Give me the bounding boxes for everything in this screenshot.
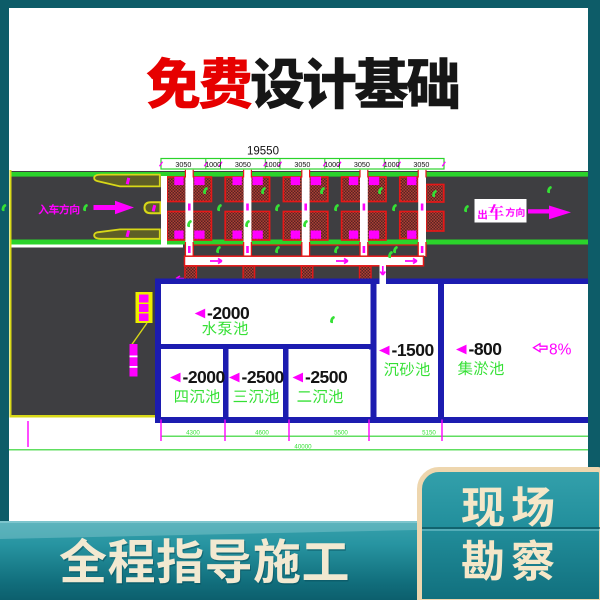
svg-text:5500: 5500: [334, 430, 348, 437]
svg-text:19550: 19550: [247, 146, 279, 158]
svg-text:3050: 3050: [175, 160, 191, 169]
svg-text:4300: 4300: [186, 430, 200, 437]
svg-text:-2500: -2500: [242, 367, 285, 387]
svg-text:1000: 1000: [265, 160, 281, 169]
svg-text:5150: 5150: [422, 430, 436, 437]
svg-text:1000: 1000: [384, 160, 400, 169]
svg-text:-2000: -2000: [183, 367, 226, 387]
svg-text:-800: -800: [469, 339, 503, 359]
svg-text:3050: 3050: [235, 160, 251, 169]
svg-text:3050: 3050: [354, 160, 370, 169]
svg-text:-2000: -2000: [207, 303, 250, 323]
svg-text:8%: 8%: [549, 342, 572, 359]
svg-text:40000: 40000: [294, 444, 312, 451]
svg-text:1000: 1000: [324, 160, 340, 169]
svg-text:1000: 1000: [205, 160, 221, 169]
svg-text:-2500: -2500: [305, 367, 348, 387]
svg-text:3050: 3050: [294, 160, 310, 169]
svg-text:-1500: -1500: [392, 340, 435, 360]
svg-text:3050: 3050: [413, 160, 429, 169]
svg-text:4600: 4600: [255, 430, 269, 437]
